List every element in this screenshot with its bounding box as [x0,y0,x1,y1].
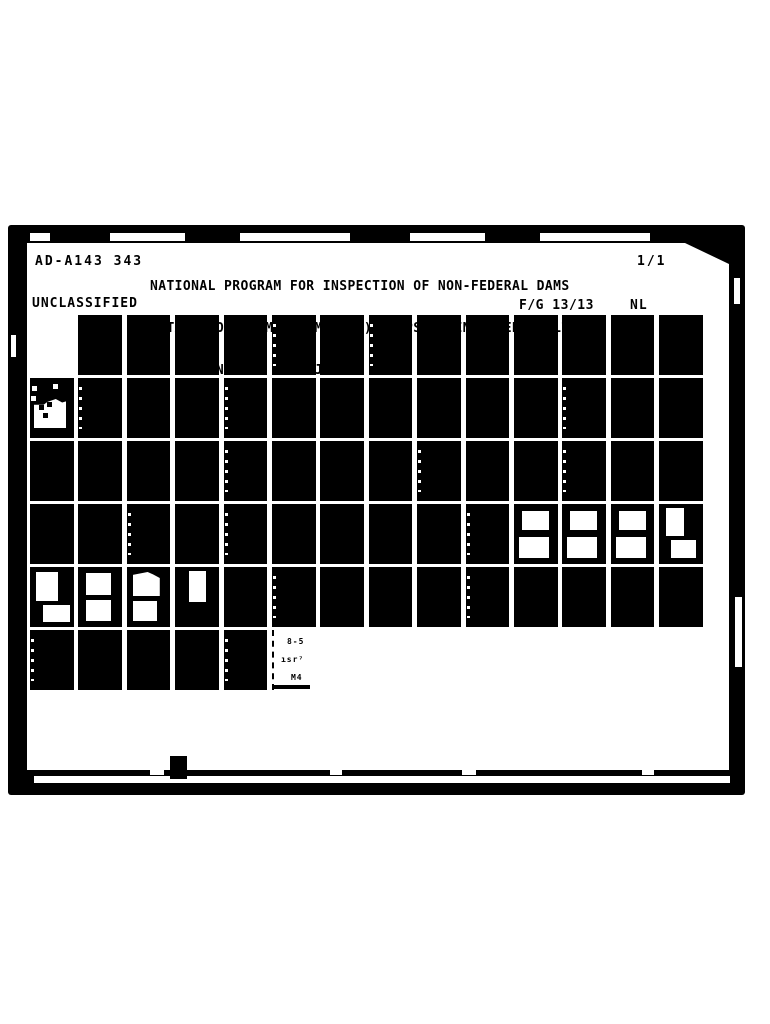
fiche-frame [369,315,413,375]
fiche-frame [369,441,413,501]
empty-slot [369,630,413,690]
scan-artifact [170,756,187,779]
empty-slot [30,315,74,375]
fiche-frame [466,567,510,627]
sheet-count: 1/1 [637,254,666,269]
fiche-frame [417,315,461,375]
fiche-frame [659,378,703,438]
document-id: AD-A143 343 [35,254,143,269]
fiche-frame [175,315,219,375]
fiche-frame [369,567,413,627]
fiche-grid: 8-5ısr⁷M4 [30,315,703,690]
film-edge-artifact [30,233,690,241]
fiche-frame [175,504,219,564]
pagination-code: NL [630,298,648,313]
fiche-frame [466,504,510,564]
fiche-frame [562,378,606,438]
fiche-frame-thumbnail [659,504,703,564]
fiche-frame-thumbnail [514,504,558,564]
fiche-frame [659,315,703,375]
fiche-frame [30,630,74,690]
empty-slot [659,630,703,690]
fiche-frame [514,315,558,375]
fiche-frame [659,567,703,627]
fiche-frame [320,441,364,501]
fiche-frame-thumbnail [78,567,122,627]
card-bottom-edge [30,770,730,775]
fiche-frame [272,378,316,438]
fiche-frame-thumbnail [611,504,655,564]
fiche-frame [466,441,510,501]
empty-slot [514,630,558,690]
fiche-frame [369,378,413,438]
scanned-fiche-card: AD-A143 343 NATIONAL PROGRAM FOR INSPECT… [8,225,745,795]
fiche-frame [417,567,461,627]
scan-artifact [11,335,16,357]
fiche-frame [611,441,655,501]
fiche-frame [320,504,364,564]
end-frame-mark: ısr⁷ [281,655,304,664]
fiche-frame [78,378,122,438]
fiche-frame [78,441,122,501]
fiche-frame [224,567,268,627]
empty-slot [466,630,510,690]
fiche-frame [224,630,268,690]
classification-label: UNCLASSIFIED [32,296,138,311]
fiche-frame [30,504,74,564]
fiche-frame [127,504,171,564]
empty-slot [417,630,461,690]
fiche-frame [175,378,219,438]
scan-artifact [34,776,730,783]
empty-slot [320,630,364,690]
fiche-frame [369,504,413,564]
empty-slot [562,630,606,690]
title-line: NATIONAL PROGRAM FOR INSPECTION OF NON-F… [150,280,594,294]
fiche-frame [611,315,655,375]
fiche-frame [224,378,268,438]
fiche-frame [417,378,461,438]
fiche-frame-thumbnail [30,378,74,438]
fiche-frame [127,378,171,438]
fiche-frame [127,441,171,501]
fiche-frame [466,315,510,375]
fiche-frame [175,630,219,690]
fiche-frame [127,315,171,375]
fiche-frame [562,441,606,501]
fiche-frame [78,315,122,375]
fiche-frame [417,504,461,564]
end-frame-mark: 8-5 [287,637,304,646]
fiche-frame [514,378,558,438]
fiche-frame [78,504,122,564]
fiche-frame [514,567,558,627]
fiche-frame-thumbnail [127,567,171,627]
fiche-frame-thumbnail [175,567,219,627]
fiche-frame [611,567,655,627]
page: AD-A143 343 NATIONAL PROGRAM FOR INSPECT… [0,0,770,1024]
fiche-frame [611,378,655,438]
fiche-frame [320,315,364,375]
fiche-frame [417,441,461,501]
fiche-frame [30,441,74,501]
fiche-frame-thumbnail [562,504,606,564]
fiche-frame-thumbnail [30,567,74,627]
subject-field-group: F/G 13/13 [519,298,594,313]
fiche-header-card: AD-A143 343 NATIONAL PROGRAM FOR INSPECT… [27,243,729,770]
fiche-frame [224,315,268,375]
fiche-frame [224,441,268,501]
fiche-frame [272,315,316,375]
fiche-frame [320,567,364,627]
fiche-frame [320,378,364,438]
end-frame-mark: M4 [291,673,303,682]
scan-artifact [734,278,740,304]
fiche-frame [659,441,703,501]
end-frame: 8-5ısr⁷M4 [272,630,316,690]
fiche-frame [127,630,171,690]
fiche-frame [224,504,268,564]
fiche-frame [466,378,510,438]
fiche-frame [514,441,558,501]
fiche-frame [272,504,316,564]
fiche-frame [272,441,316,501]
fiche-frame [562,567,606,627]
fiche-frame [562,315,606,375]
fiche-frame [78,630,122,690]
scan-artifact [735,597,742,667]
empty-slot [611,630,655,690]
fiche-frame [272,567,316,627]
fiche-frame [175,441,219,501]
